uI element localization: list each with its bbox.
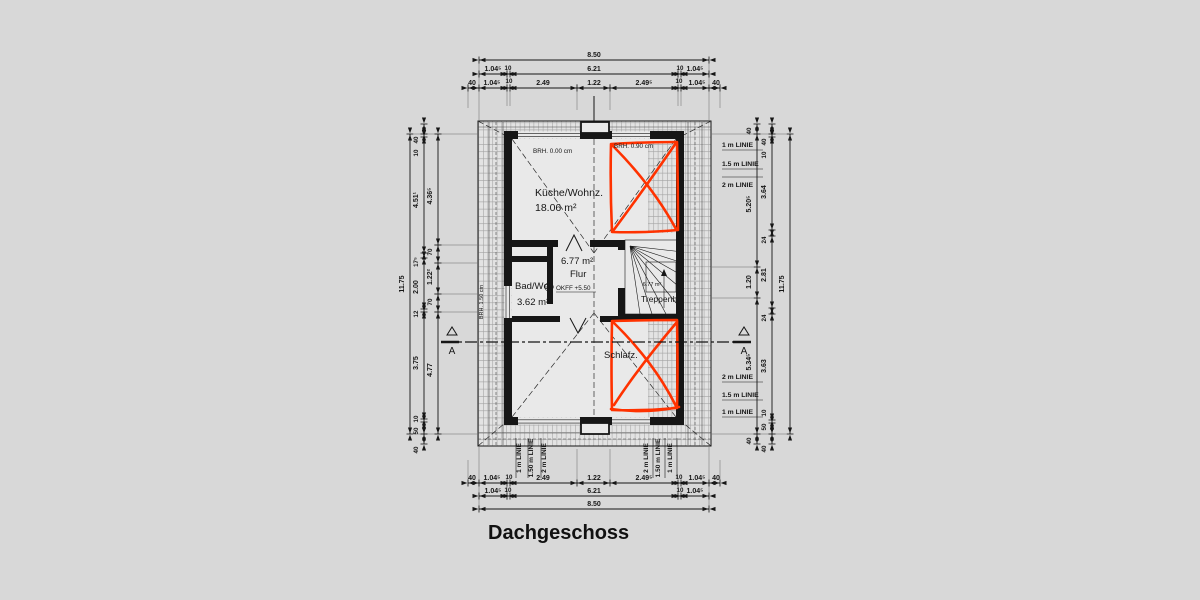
dim-label: 10 <box>413 415 420 422</box>
parapet-label-left: BRH. 1.50 cm <box>479 284 485 319</box>
floorplan-svg: A A OKFF +5.50 Küche/Wohnz. 18.06 m² 6.7… <box>0 0 1200 600</box>
dim-label: 3.75 <box>413 356 420 370</box>
dim-label: 4.77 <box>427 363 434 377</box>
dim-label: 40 <box>413 446 420 453</box>
bath-name: Bad/Wc <box>515 281 549 292</box>
dim-label: 40 <box>468 80 476 87</box>
kitchen-area: 18.06 m² <box>535 202 577 214</box>
dim-label: 10 <box>506 78 513 85</box>
dim-label: 10 <box>677 65 684 72</box>
floor-plan-canvas: A A OKFF +5.50 Küche/Wohnz. 18.06 m² 6.7… <box>0 0 1200 600</box>
linie-label: 2 m LINIE <box>643 443 650 473</box>
dim-label: 10 <box>413 149 420 156</box>
linie-label: 1.5 m LINIE <box>722 161 759 168</box>
drawing-title: Dachgeschoss <box>488 522 629 545</box>
stair-area: 6.77 m² <box>643 282 662 288</box>
parapet-label-top-right: BRH. 0.90 cm <box>614 143 653 150</box>
bath-area: 3.62 m² <box>517 297 549 308</box>
dim-label: 1.04⁵ <box>687 66 704 73</box>
dim-label: 6.21 <box>587 488 601 495</box>
kitchen-name: Küche/Wohnz. <box>535 187 603 199</box>
dim-label: 2.81 <box>761 268 768 282</box>
linie-label: 1 m LINIE <box>667 443 674 473</box>
dim-label: 50 <box>761 423 768 430</box>
hall-area: 6.77 m² <box>561 256 593 267</box>
dim-label: 40 <box>712 80 720 87</box>
dim-label: 4.51¹ <box>413 191 420 208</box>
dim-label: 70 <box>427 248 434 255</box>
dim-labels-left: 11.75 40 10 4.51¹ 17⁵ 2.00 12 3.75 10 50… <box>399 136 434 453</box>
dim-label: 10 <box>505 487 512 494</box>
dim-label: 8.50 <box>587 501 601 508</box>
dim-label: 10 <box>676 474 683 481</box>
dim-label: 6.21 <box>587 66 601 73</box>
dim-label: 1.04⁵ <box>484 80 501 87</box>
dim-label: 1.04⁵ <box>687 488 704 495</box>
dim-label: 1.04⁵ <box>689 475 706 482</box>
dim-label: 40 <box>746 437 753 444</box>
dim-label: 5.20⁵ <box>746 196 753 213</box>
dim-label: 2.49 <box>536 475 550 482</box>
linie-label: 1 m LINIE <box>722 142 753 149</box>
dim-label: 11.75 <box>399 275 406 292</box>
dim-label: 10 <box>761 409 768 416</box>
stair-name: Treppenh. <box>641 294 679 304</box>
section-letter-left: A <box>449 346 456 357</box>
dim-label: 4.36⁵ <box>427 188 434 205</box>
dim-label: 3.64 <box>761 185 768 199</box>
linie-label: 1.5 m LINIE <box>722 392 759 399</box>
dim-labels-bottom: 40 1.04⁵ 10 2.49 1.22 2.49⁵ 10 1.04⁵ 40 … <box>468 474 720 508</box>
dim-label: 10 <box>505 65 512 72</box>
bedroom-name: Schlafz. <box>604 350 638 361</box>
dim-label: 11.75 <box>779 275 786 292</box>
dim-label: 1.04⁵ <box>485 66 502 73</box>
dim-label: 40 <box>746 127 753 134</box>
linie-label: 2 m LINIE <box>722 182 753 189</box>
dim-label: 24 <box>761 236 768 243</box>
dim-label: 24 <box>761 314 768 321</box>
linie-label: 1 m LINIE <box>516 443 523 473</box>
dim-label: 10 <box>676 78 683 85</box>
dim-label: 1.22 <box>587 80 601 87</box>
dim-label: 8.50 <box>587 52 601 59</box>
dim-label: 3.63 <box>761 359 768 373</box>
dim-label: 1.22² <box>427 268 434 285</box>
dim-label: 10 <box>761 151 768 158</box>
dim-label: 2.00 <box>413 280 420 294</box>
dim-label: 40 <box>468 475 476 482</box>
dim-label: 40 <box>761 138 768 145</box>
dim-label: 40 <box>712 475 720 482</box>
dim-label: 2.49 <box>536 80 550 87</box>
dim-label: 2.49⁵ <box>636 80 653 87</box>
dim-label: 10 <box>506 474 513 481</box>
dim-label: 40 <box>761 445 768 452</box>
dim-label: 1.04⁵ <box>689 80 706 87</box>
dim-labels-top: 8.50 1.04⁵ 10 6.21 10 1.04⁵ 40 1.04⁵ 10 … <box>468 52 720 87</box>
hall-name: Flur <box>570 269 586 280</box>
linie-label: 2 m LINIE <box>541 443 548 473</box>
level-text: OKFF +5.50 <box>556 285 591 292</box>
dim-label: 17⁵ <box>413 257 420 267</box>
dim-label: 1.04⁵ <box>484 475 501 482</box>
linie-label: 1.50 m LINIE <box>655 438 662 477</box>
dim-label: 70 <box>427 298 434 305</box>
dim-label: 1.22 <box>587 475 601 482</box>
dim-label: 1.20 <box>746 275 753 289</box>
dim-labels-right: 40 5.20⁵ 1.20 5.34⁵ 40 40 10 3.64 24 2.8… <box>746 127 786 452</box>
dim-label: 2.49⁵ <box>636 475 653 482</box>
parapet-label-top-left: BRH. 0.00 cm <box>533 148 572 155</box>
linie-label: 1 m LINIE <box>722 409 753 416</box>
dim-label: 40 <box>413 136 420 143</box>
dim-label: 5.34⁵ <box>746 354 753 371</box>
dim-label: 10 <box>677 487 684 494</box>
linie-label: 2 m LINIE <box>722 374 753 381</box>
linie-label: 1.50 m LINIE <box>528 438 535 477</box>
dim-label: 1.04⁵ <box>485 488 502 495</box>
dim-label: 12 <box>413 310 420 317</box>
section-arrow-left <box>447 327 457 335</box>
section-arrow-right <box>739 327 749 335</box>
dim-label: 50 <box>413 427 420 434</box>
